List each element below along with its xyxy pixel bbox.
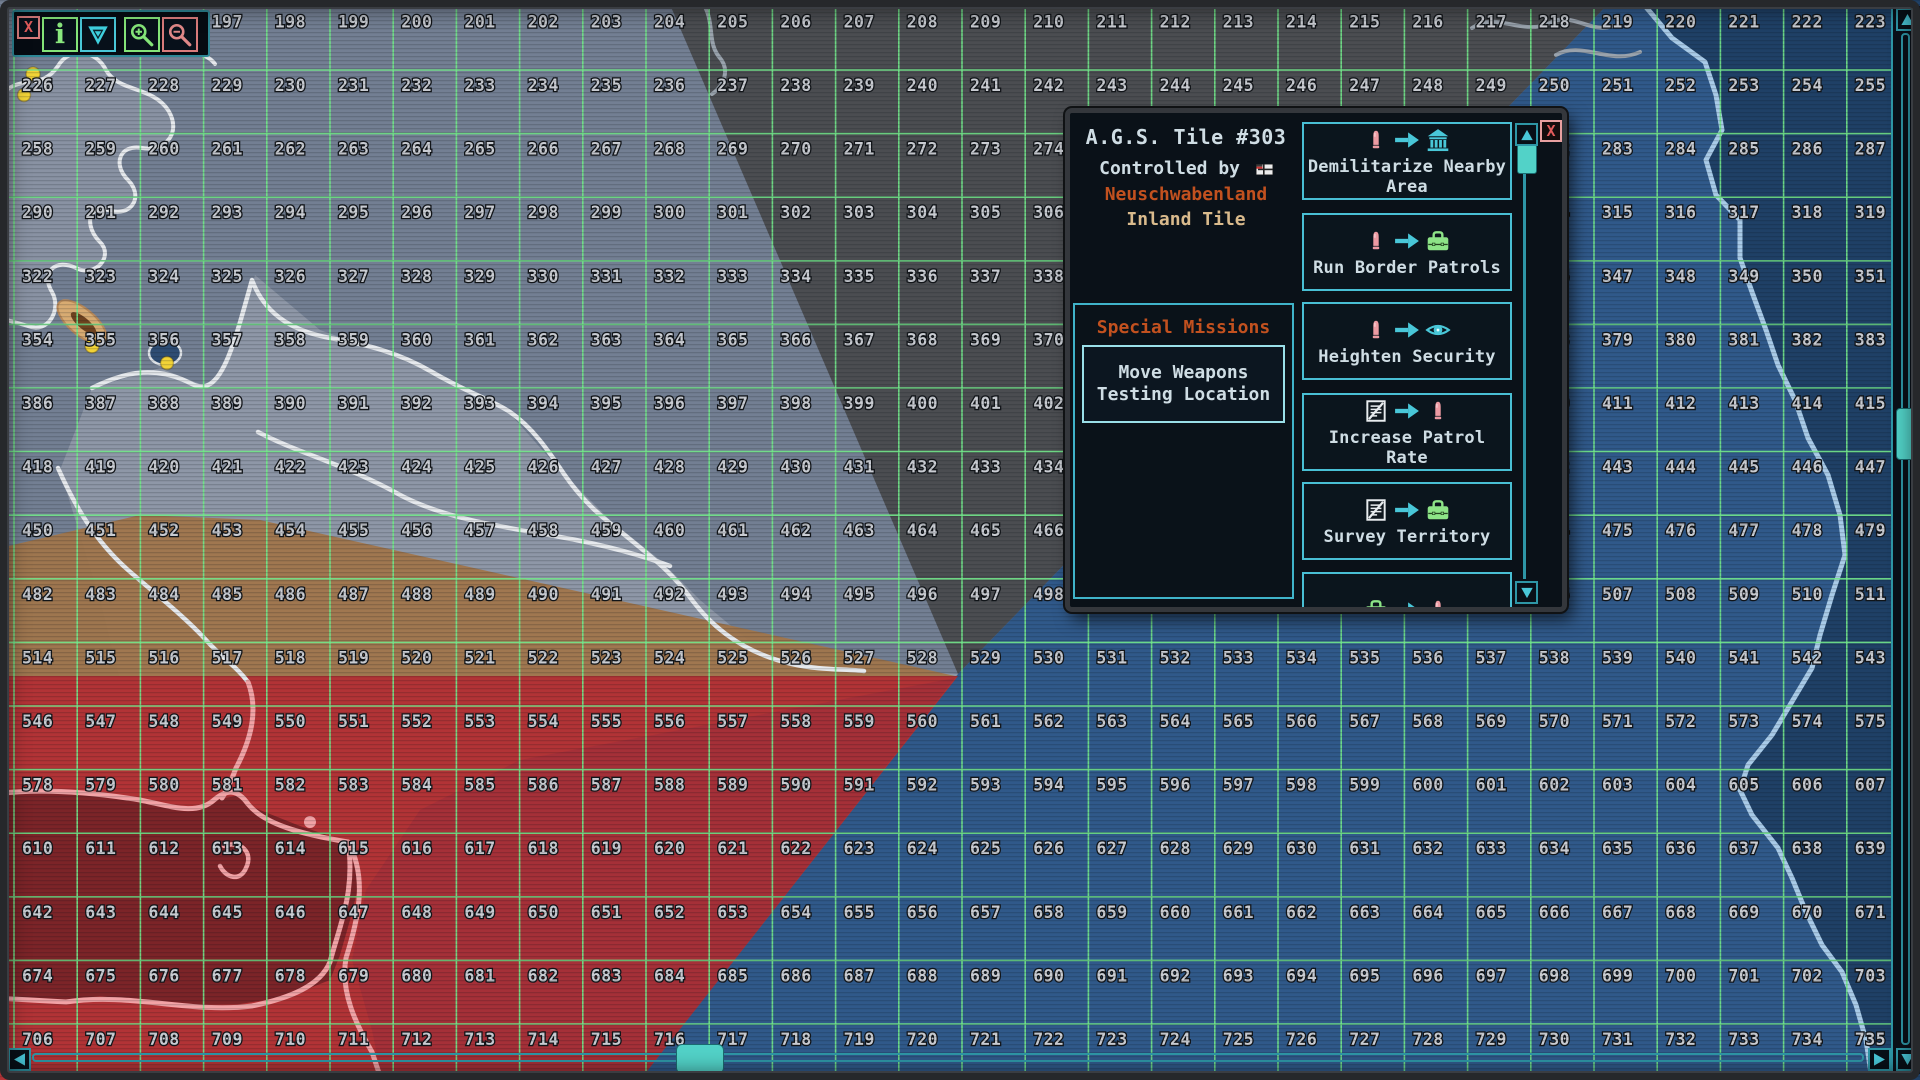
- mission-button-2[interactable]: Run Border Patrols: [1302, 213, 1512, 291]
- vertical-scroll-thumb[interactable]: [1896, 408, 1918, 460]
- dialog-title: A.G.S. Tile #303: [1070, 125, 1302, 149]
- vertical-scroll-track[interactable]: [1901, 33, 1910, 1045]
- arrow-right-icon: [1394, 497, 1420, 523]
- bullet-icon: [1425, 597, 1451, 613]
- triangle-flag-icon: [85, 22, 111, 48]
- arrow-right-icon: [1394, 317, 1420, 343]
- info-button[interactable]: i: [42, 17, 78, 52]
- arrow-right-icon: [1394, 127, 1420, 153]
- controlled-by-line: Controlled by: [1070, 158, 1302, 180]
- mission-icon-row: [1363, 315, 1451, 345]
- mission-label: Survey Territory: [1324, 528, 1491, 547]
- mission-label: Demilitarize Nearby Area: [1304, 158, 1510, 196]
- arrow-up-icon: [1520, 128, 1534, 142]
- horizontal-scroll-thumb[interactable]: [676, 1044, 724, 1074]
- arrow-up-icon: [1900, 12, 1915, 27]
- zoom-in-button[interactable]: [124, 17, 160, 52]
- arrow-down-icon: [1520, 586, 1534, 600]
- map-canvas[interactable]: 1941951961971981992002012022032042052062…: [0, 0, 1920, 1080]
- bullet-icon: [1363, 317, 1389, 343]
- special-mission-label: Move Weapons Testing Location: [1084, 362, 1283, 407]
- document-icon: [1363, 398, 1389, 424]
- game-screen: 1941951961971981992002012022032042052062…: [0, 0, 1920, 1080]
- briefcase-icon: [1363, 597, 1389, 613]
- tile-info-dialog: A.G.S. Tile #303 Controlled by Neuschwab…: [1065, 108, 1567, 612]
- zoom-out-button[interactable]: [162, 17, 198, 52]
- close-button[interactable]: X: [17, 16, 40, 39]
- dialog-scroll-up-button[interactable]: [1515, 123, 1538, 146]
- arrow-right-icon: [1394, 398, 1420, 424]
- dialog-close-button[interactable]: X: [1540, 120, 1562, 142]
- mission-button-1[interactable]: Demilitarize Nearby Area: [1302, 122, 1512, 200]
- bank-icon: [1425, 127, 1451, 153]
- mission-label: Run Border Patrols: [1313, 259, 1501, 278]
- nation-flag-icon: [1256, 159, 1273, 180]
- tile-type: Inland Tile: [1070, 209, 1302, 230]
- dialog-scroll-down-button[interactable]: [1515, 581, 1538, 604]
- arrow-left-icon: [12, 1052, 27, 1067]
- mission-button-3[interactable]: Heighten Security: [1302, 302, 1512, 380]
- dialog-scroll-thumb[interactable]: [1517, 144, 1537, 174]
- scroll-right-button[interactable]: [1868, 1048, 1891, 1071]
- controller-name: Neuschwabenland: [1070, 184, 1302, 205]
- mission-icon-row: [1363, 595, 1451, 613]
- bullet-icon: [1425, 398, 1451, 424]
- mission-icon-row: [1363, 125, 1451, 155]
- mission-icon-row: [1363, 396, 1451, 426]
- arrow-right-icon: [1872, 1052, 1887, 1067]
- mission-list: Demilitarize Nearby AreaRun Border Patro…: [1302, 113, 1514, 607]
- bullet-icon: [1363, 127, 1389, 153]
- scroll-down-button[interactable]: [1896, 1048, 1919, 1071]
- mission-label: Heighten Security: [1318, 348, 1495, 367]
- document-icon: [1363, 497, 1389, 523]
- mission-icon-row: [1363, 226, 1451, 256]
- tile-summary: A.G.S. Tile #303 Controlled by Neuschwab…: [1070, 125, 1302, 230]
- horizontal-scroll-track[interactable]: [32, 1053, 1864, 1062]
- eye-icon: [1425, 317, 1451, 343]
- marker-button[interactable]: [80, 17, 116, 52]
- special-missions-header: Special Missions: [1075, 317, 1292, 338]
- special-missions-panel: Special Missions Move Weapons Testing Lo…: [1073, 303, 1294, 599]
- bullet-icon: [1363, 228, 1389, 254]
- mission-icon-row: [1363, 495, 1451, 525]
- briefcase-icon: [1425, 228, 1451, 254]
- scroll-up-button[interactable]: [1896, 8, 1919, 31]
- special-mission-button[interactable]: Move Weapons Testing Location: [1082, 345, 1285, 423]
- arrow-down-icon: [1900, 1052, 1915, 1067]
- mission-button-5[interactable]: Survey Territory: [1302, 482, 1512, 560]
- mission-button-6[interactable]: [1302, 572, 1512, 612]
- scroll-left-button[interactable]: [8, 1048, 31, 1071]
- map-toolbar: X i: [12, 10, 210, 57]
- controlled-by-label: Controlled by: [1099, 158, 1240, 179]
- arrow-right-icon: [1394, 597, 1420, 613]
- arrow-right-icon: [1394, 228, 1420, 254]
- dialog-scroll-track[interactable]: [1523, 147, 1526, 579]
- mission-button-4[interactable]: Increase Patrol Rate: [1302, 393, 1512, 471]
- zoom-out-icon: [167, 22, 193, 48]
- briefcase-icon: [1425, 497, 1451, 523]
- mission-label: Increase Patrol Rate: [1304, 429, 1510, 467]
- zoom-in-icon: [129, 22, 155, 48]
